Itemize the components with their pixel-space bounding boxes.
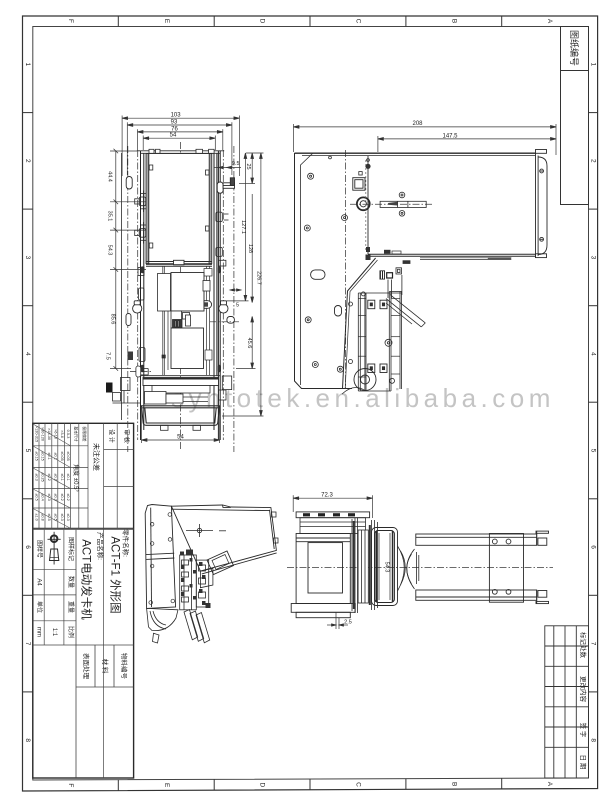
svg-text:±0.5: ±0.5 <box>35 493 39 500</box>
svg-text:产品名称:: 产品名称: <box>96 532 105 560</box>
svg-text:±0.2: ±0.2 <box>60 493 64 500</box>
svg-text:1: 1 <box>590 62 597 66</box>
svg-text:72.3: 72.3 <box>321 493 333 499</box>
svg-text:表面处理: 表面处理 <box>82 653 91 680</box>
svg-text:±0.5: ±0.5 <box>54 513 58 520</box>
svg-text:日 期: 日 期 <box>579 755 587 770</box>
svg-text:图样标记: 图样标记 <box>67 537 75 561</box>
svg-text:>6-18: >6-18 <box>54 429 58 439</box>
svg-text:基本尺寸: 基本尺寸 <box>74 426 79 441</box>
svg-text:>18-30: >18-30 <box>47 428 51 440</box>
svg-text:6: 6 <box>24 545 31 549</box>
svg-text:±0.2: ±0.2 <box>54 473 58 480</box>
svg-text:±0.3: ±0.3 <box>60 513 64 520</box>
svg-text:5: 5 <box>236 303 239 309</box>
svg-text:8: 8 <box>590 738 597 742</box>
svg-text:材 料: 材 料 <box>101 659 110 674</box>
svg-text:数量: 数量 <box>67 576 75 588</box>
svg-text:零件名称:: 零件名称: <box>122 529 131 557</box>
svg-text:5: 5 <box>24 449 31 453</box>
svg-text:±0.2: ±0.2 <box>47 473 51 480</box>
svg-text:±0.3: ±0.3 <box>47 493 51 500</box>
svg-text:A: A <box>546 19 553 24</box>
svg-text:54: 54 <box>170 133 177 139</box>
svg-text:角度 ±0.5°: 角度 ±0.5° <box>72 464 80 492</box>
svg-text:E: E <box>163 19 170 24</box>
svg-text:±1.0: ±1.0 <box>35 513 39 520</box>
svg-text:±0.15: ±0.15 <box>35 451 39 460</box>
svg-text:1:1: 1:1 <box>51 628 57 637</box>
svg-text:mm: mm <box>36 627 42 637</box>
svg-text:图样号: 图样号 <box>36 540 44 558</box>
svg-text:2: 2 <box>24 159 31 163</box>
svg-text:签 字: 签 字 <box>579 723 588 738</box>
svg-text:±0.4: ±0.4 <box>41 493 45 500</box>
svg-text:0.5-3: 0.5-3 <box>66 430 70 439</box>
svg-text:44.4: 44.4 <box>107 171 113 182</box>
svg-text:±0.1: ±0.1 <box>66 473 70 480</box>
svg-text:54.3: 54.3 <box>384 562 390 573</box>
svg-text:极限偏差: 极限偏差 <box>82 426 87 441</box>
svg-text:85.6: 85.6 <box>110 314 116 325</box>
svg-text:单位: 单位 <box>36 601 44 613</box>
svg-text:6: 6 <box>590 545 597 549</box>
svg-text:4: 4 <box>24 352 31 356</box>
svg-text:±0.15: ±0.15 <box>41 451 45 460</box>
svg-text:93: 93 <box>171 120 178 126</box>
svg-text:±0.1: ±0.1 <box>54 452 58 459</box>
svg-text:3: 3 <box>24 256 31 260</box>
svg-text:147.5: 147.5 <box>442 133 458 139</box>
svg-text:B: B <box>450 782 457 786</box>
svg-text:D: D <box>259 19 266 24</box>
svg-text:ACT电动发卡机: ACT电动发卡机 <box>80 539 94 620</box>
svg-text:C: C <box>355 782 362 787</box>
svg-text:±0.3: ±0.3 <box>54 493 58 500</box>
svg-text:未注公差: 未注公差 <box>92 443 101 471</box>
svg-text:syntotek.en.alibaba.com: syntotek.en.alibaba.com <box>171 383 555 413</box>
svg-text:1: 1 <box>24 62 31 66</box>
svg-text:物料编号: 物料编号 <box>120 653 129 680</box>
svg-text:7.5: 7.5 <box>105 352 111 360</box>
svg-text:4: 4 <box>590 352 597 356</box>
svg-text:审 核: 审 核 <box>123 429 131 443</box>
svg-text:F: F <box>67 19 74 23</box>
svg-text:±0.8: ±0.8 <box>41 513 45 520</box>
svg-text:±0.25: ±0.25 <box>41 472 45 481</box>
svg-text:>120-315: >120-315 <box>35 426 39 442</box>
svg-text:103: 103 <box>171 113 182 119</box>
svg-text:±0.3: ±0.3 <box>66 513 70 520</box>
svg-text:2: 2 <box>590 159 597 163</box>
svg-text:ACT-F1 外形图: ACT-F1 外形图 <box>109 536 122 613</box>
svg-text:35.1: 35.1 <box>107 211 113 222</box>
svg-text:C: C <box>355 19 362 24</box>
svg-text:重量: 重量 <box>67 601 75 613</box>
svg-text:9.5: 9.5 <box>232 161 240 167</box>
svg-text:128: 128 <box>247 244 253 253</box>
svg-text:54: 54 <box>177 435 184 441</box>
svg-text:图纸编号: 图纸编号 <box>569 30 580 66</box>
svg-text:3: 3 <box>590 256 597 260</box>
svg-text:±0.1: ±0.1 <box>47 452 51 459</box>
svg-text:7: 7 <box>24 642 31 646</box>
svg-text:45.6: 45.6 <box>246 338 252 349</box>
svg-text:127.1: 127.1 <box>240 220 246 234</box>
svg-text:±0.05: ±0.05 <box>60 451 64 460</box>
svg-text:A: A <box>546 782 553 787</box>
svg-text:标记处数: 标记处数 <box>579 632 588 659</box>
svg-text:>30-120: >30-120 <box>41 427 45 441</box>
svg-text:5: 5 <box>590 449 597 453</box>
svg-text:208: 208 <box>412 121 423 127</box>
svg-text:8: 8 <box>24 738 31 742</box>
svg-text:更改内容: 更改内容 <box>579 676 588 703</box>
svg-text:54.3: 54.3 <box>107 245 113 256</box>
svg-text:B: B <box>450 19 457 23</box>
svg-text:>3-6: >3-6 <box>60 430 64 438</box>
svg-text:比例: 比例 <box>67 626 75 638</box>
svg-text:E: E <box>163 783 170 788</box>
svg-text:±0.5: ±0.5 <box>47 513 51 520</box>
svg-text:76: 76 <box>171 126 178 132</box>
svg-text:±0.3: ±0.3 <box>35 473 39 480</box>
svg-text:F: F <box>67 783 74 787</box>
svg-text:2.5: 2.5 <box>344 620 352 626</box>
svg-text:7: 7 <box>590 642 597 646</box>
svg-text:25: 25 <box>245 163 251 169</box>
svg-text:±0.05: ±0.05 <box>66 451 70 460</box>
svg-text:D: D <box>259 783 266 788</box>
svg-text:A4: A4 <box>36 578 42 586</box>
svg-text:设 计: 设 计 <box>108 429 116 443</box>
svg-text:226.7: 226.7 <box>256 271 262 285</box>
svg-text:±0.1: ±0.1 <box>60 473 64 480</box>
svg-text:±0.2: ±0.2 <box>66 493 70 500</box>
